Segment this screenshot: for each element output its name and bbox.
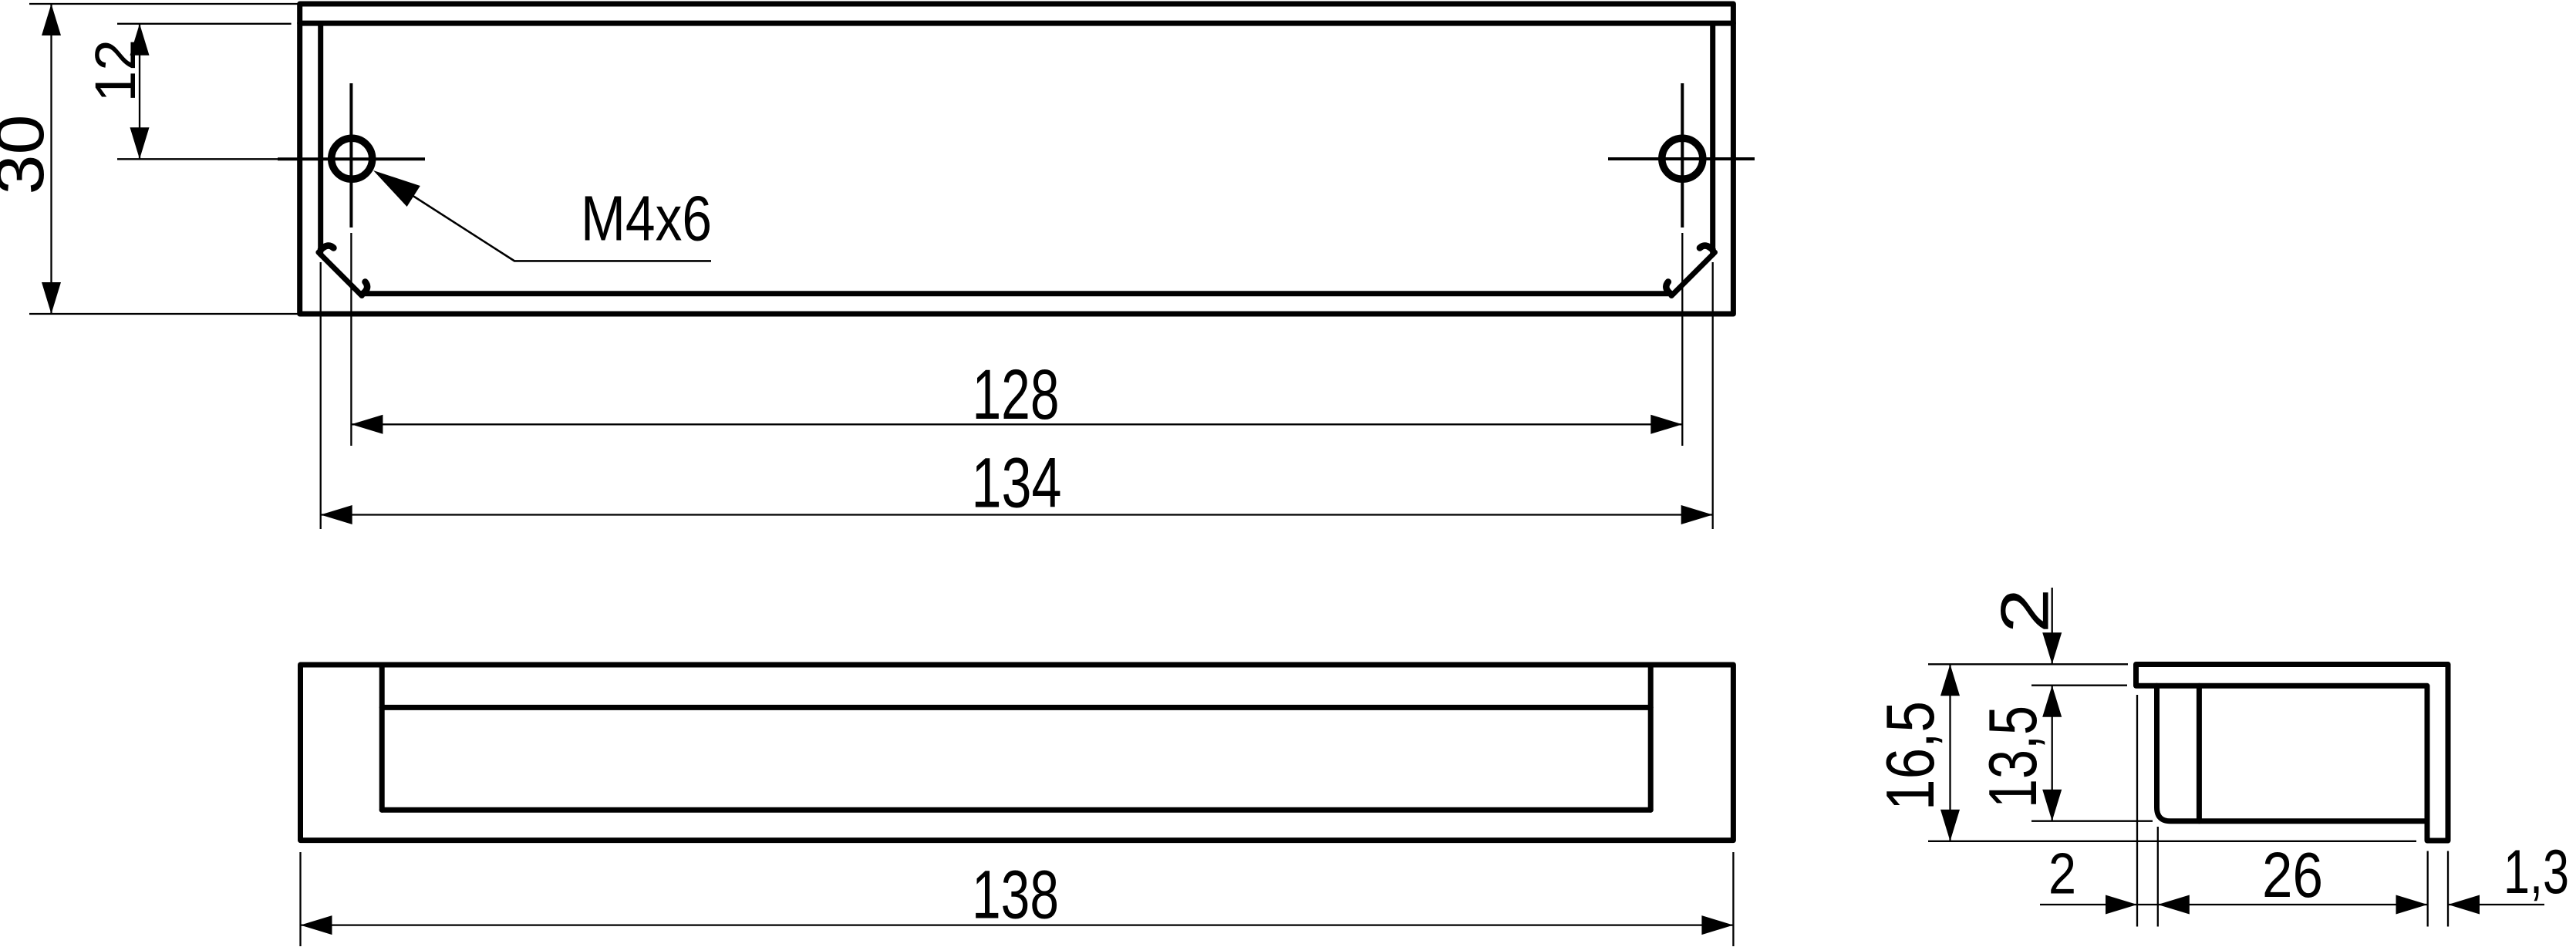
svg-text:26: 26 bbox=[2262, 839, 2323, 911]
svg-text:2: 2 bbox=[2048, 841, 2076, 906]
svg-text:13,5: 13,5 bbox=[1974, 706, 2051, 808]
svg-text:2: 2 bbox=[1987, 588, 2063, 633]
svg-text:138: 138 bbox=[972, 856, 1059, 933]
svg-text:1,3: 1,3 bbox=[2504, 837, 2569, 907]
svg-text:134: 134 bbox=[972, 443, 1062, 522]
svg-text:12: 12 bbox=[83, 39, 147, 103]
svg-text:30: 30 bbox=[0, 115, 58, 195]
svg-text:128: 128 bbox=[973, 356, 1060, 434]
svg-text:16,5: 16,5 bbox=[1872, 701, 1948, 811]
svg-text:M4x6: M4x6 bbox=[581, 183, 712, 254]
